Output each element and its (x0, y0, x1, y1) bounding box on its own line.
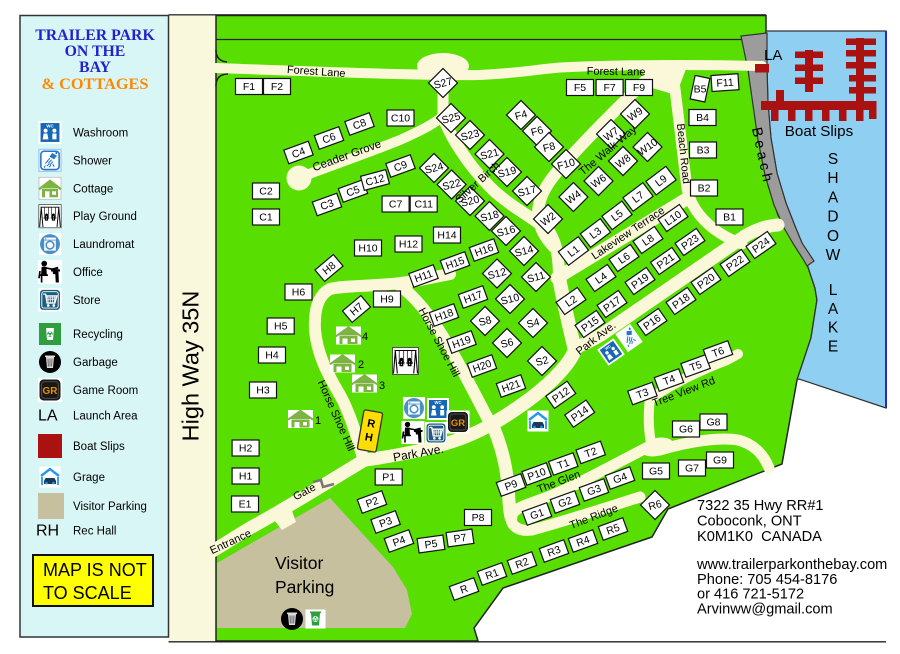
svg-text:A: A (828, 189, 839, 206)
svg-text:F2: F2 (271, 81, 283, 93)
svg-text:G7: G7 (685, 463, 699, 475)
svg-text:WC: WC (46, 123, 54, 128)
svg-text:2: 2 (358, 359, 364, 371)
svg-text:Washroom: Washroom (73, 128, 128, 140)
svg-text:Cottage: Cottage (73, 183, 113, 195)
svg-text:Forest Lane: Forest Lane (587, 65, 646, 78)
svg-text:B3: B3 (697, 145, 710, 157)
svg-text:1: 1 (315, 415, 321, 427)
svg-text:B4: B4 (696, 112, 709, 124)
svg-text:LA: LA (764, 47, 782, 64)
svg-text:P1: P1 (382, 472, 395, 484)
svg-text:C7: C7 (389, 199, 403, 211)
svg-text:W: W (826, 247, 841, 264)
svg-text:Phone: 705 454-8176: Phone: 705 454-8176 (697, 572, 837, 588)
svg-text:Game Room: Game Room (73, 385, 138, 397)
svg-text:Garbage: Garbage (73, 357, 118, 369)
svg-text:Rec Hall: Rec Hall (73, 526, 116, 538)
svg-text:Store: Store (73, 295, 101, 307)
svg-text:P7: P7 (453, 532, 468, 546)
svg-text:High Way 35N: High Way 35N (178, 291, 204, 442)
svg-text:L: L (829, 282, 838, 299)
svg-text:C2: C2 (259, 186, 273, 198)
svg-text:P8: P8 (472, 512, 485, 524)
svg-text:Play Ground: Play Ground (73, 211, 137, 223)
svg-text:S: S (828, 151, 838, 168)
svg-text:C11: C11 (414, 199, 433, 211)
svg-text:F1: F1 (243, 81, 255, 93)
svg-text:H: H (827, 170, 838, 187)
svg-text:Visitor Parking: Visitor Parking (73, 501, 147, 513)
svg-text:Shower: Shower (73, 155, 112, 167)
svg-text:G5: G5 (649, 466, 663, 478)
svg-text:B5: B5 (694, 83, 707, 95)
svg-text:K0M1K0 CANADA: K0M1K0 CANADA (697, 529, 822, 545)
svg-text:Launch Area: Launch Area (73, 411, 138, 423)
svg-text:MAP IS NOT: MAP IS NOT (43, 560, 147, 580)
svg-text:H1: H1 (239, 471, 253, 483)
svg-text:Parking: Parking (275, 577, 334, 597)
svg-text:A: A (828, 301, 839, 318)
svg-text:C1: C1 (259, 212, 273, 224)
svg-text:Coboconk, ONT: Coboconk, ONT (697, 514, 802, 530)
svg-text:Boat Slips: Boat Slips (785, 123, 854, 140)
svg-text:3: 3 (379, 380, 385, 392)
svg-text:H5: H5 (274, 321, 288, 333)
svg-text:F5: F5 (574, 82, 586, 94)
svg-text:Boat Slips: Boat Slips (73, 441, 125, 453)
svg-text:4: 4 (362, 331, 368, 343)
svg-text:H14: H14 (437, 230, 456, 242)
svg-text:or 416 721-5172: or 416 721-5172 (697, 587, 804, 603)
svg-text:Office: Office (73, 267, 103, 279)
svg-text:LA: LA (38, 408, 58, 425)
svg-text:G8: G8 (706, 417, 720, 429)
svg-text:B1: B1 (723, 212, 736, 224)
svg-text:G9: G9 (713, 455, 727, 467)
svg-text:H12: H12 (399, 239, 418, 251)
svg-text:Arvinww@gmail.com: Arvinww@gmail.com (697, 601, 833, 617)
svg-text:H4: H4 (265, 350, 279, 362)
svg-text:Recycling: Recycling (73, 329, 123, 341)
svg-text:Grage: Grage (73, 472, 105, 484)
svg-text:ON THE: ON THE (65, 43, 126, 60)
svg-text:WC: WC (435, 400, 442, 405)
svg-text:H2: H2 (239, 443, 253, 455)
svg-text:F11: F11 (716, 77, 734, 90)
svg-text:GR: GR (43, 386, 58, 397)
svg-text:C10: C10 (391, 113, 410, 125)
svg-text:E: E (828, 338, 838, 355)
svg-text:GR: GR (451, 418, 465, 429)
svg-text:www.trailerparkonthebay.com: www.trailerparkonthebay.com (696, 557, 887, 573)
svg-text:RH: RH (36, 523, 59, 540)
svg-text:D: D (827, 209, 838, 226)
svg-text:& COTTAGES: & COTTAGES (42, 74, 149, 93)
svg-text:TRAILER PARK: TRAILER PARK (35, 27, 155, 44)
svg-text:H9: H9 (380, 294, 394, 306)
svg-text:O: O (827, 228, 839, 245)
svg-text:H3: H3 (256, 385, 270, 397)
svg-text:K: K (828, 320, 839, 337)
svg-text:P5: P5 (424, 538, 439, 552)
svg-text:B2: B2 (698, 183, 711, 195)
svg-text:E1: E1 (239, 499, 252, 511)
svg-text:G6: G6 (679, 424, 693, 436)
svg-text:F9: F9 (633, 82, 645, 94)
svg-text:H6: H6 (292, 287, 306, 299)
svg-text:TO SCALE: TO SCALE (43, 583, 132, 603)
svg-text:F7: F7 (603, 82, 615, 94)
svg-text:Visitor: Visitor (275, 553, 323, 573)
svg-text:H10: H10 (358, 243, 377, 255)
svg-text:7322 35 Hwy RR#1: 7322 35 Hwy RR#1 (697, 498, 824, 514)
svg-text:Laundromat: Laundromat (73, 239, 135, 251)
